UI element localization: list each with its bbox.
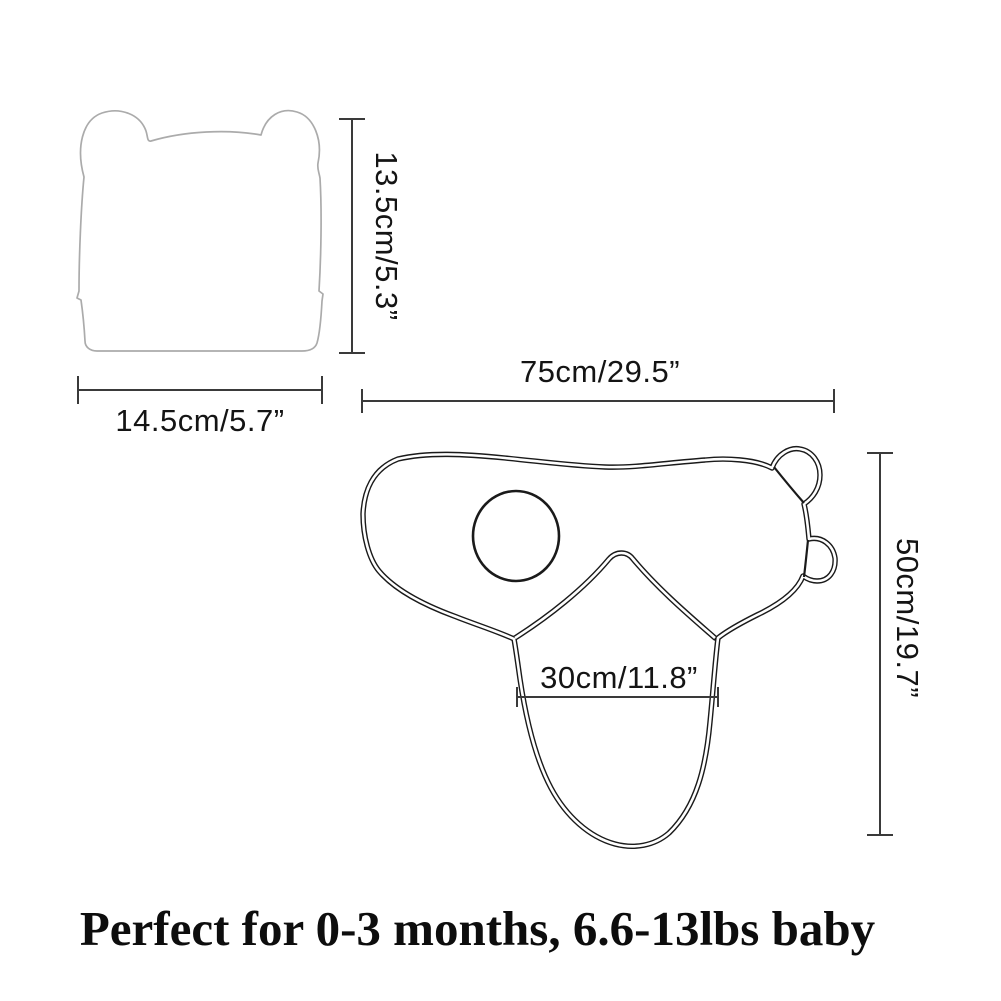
- caption-text: Perfect for 0-3 months, 6.6-13lbs baby: [0, 903, 955, 955]
- swaddle-button-hole: [473, 491, 559, 581]
- swaddle-body-outline: [363, 449, 835, 847]
- swaddle-width-label: 75cm/29.5”: [500, 355, 700, 389]
- swaddle-height-label: 50cm/19.7”: [890, 533, 924, 703]
- hat-width-label: 14.5cm/5.7”: [100, 404, 300, 438]
- diagram-canvas: [0, 0, 1001, 1001]
- hat-height-dimension: [339, 119, 365, 353]
- product-dimension-diagram: 13.5cm/5.3” 14.5cm/5.7” 75cm/29.5” 50cm/…: [0, 0, 1001, 1001]
- hat-height-label: 13.5cm/5.3”: [369, 151, 403, 321]
- hat-width-dimension: [78, 376, 322, 404]
- swaddle-width-dimension: [362, 389, 834, 413]
- swaddle-outline: [363, 449, 835, 847]
- pouch-width-label: 30cm/11.8”: [519, 661, 719, 695]
- baby-hat-outline: [77, 111, 323, 351]
